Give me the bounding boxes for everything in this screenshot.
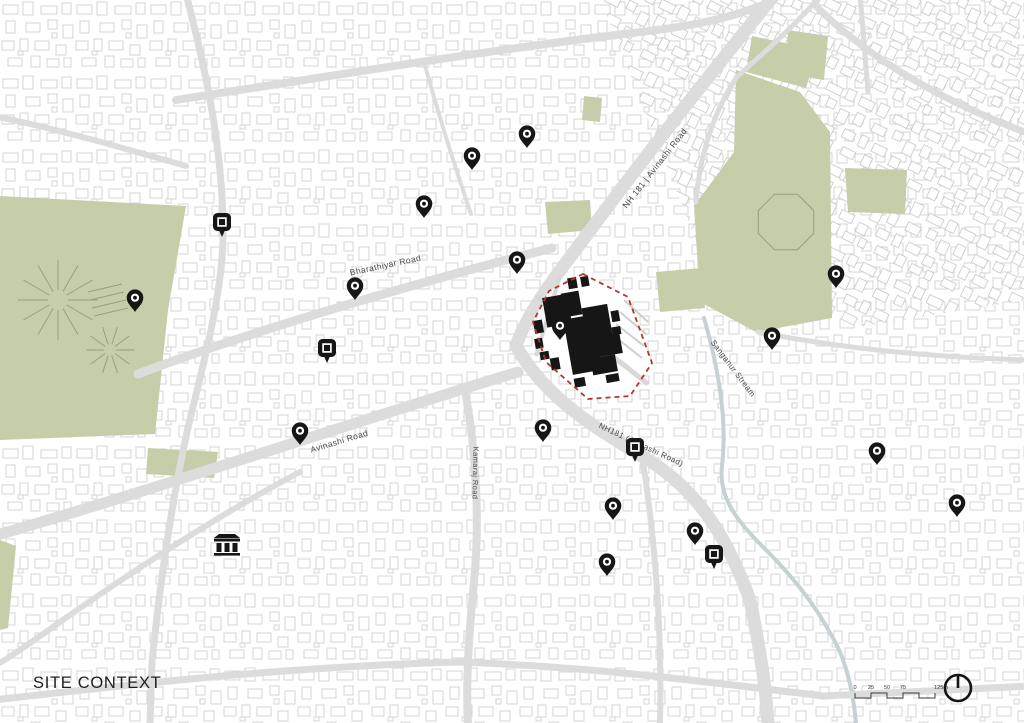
column — [217, 543, 222, 552]
pin-glyph — [558, 324, 562, 328]
scale-label: 25 — [868, 685, 874, 691]
pin-glyph — [541, 426, 545, 430]
page-title: SITE CONTEXT — [33, 674, 162, 693]
green-area — [582, 96, 602, 122]
pin-body — [318, 339, 336, 357]
pin-glyph — [875, 449, 879, 453]
column — [225, 543, 230, 552]
pin-glyph — [298, 429, 302, 433]
entablature — [214, 539, 240, 542]
pin-glyph — [693, 529, 697, 533]
pin-body — [626, 438, 644, 456]
site-building — [595, 333, 623, 357]
site-building — [611, 326, 621, 335]
road-label-kamaraj-road: Kamaraj Road — [471, 447, 481, 500]
pin-glyph — [515, 258, 519, 262]
site-context-map: Bharathiyar RoadNH 181 | Avinashi RoadAv… — [0, 0, 1024, 723]
pin-glyph — [133, 296, 137, 300]
pin-glyph — [955, 501, 959, 505]
pin-glyph — [525, 132, 529, 136]
pin-body — [213, 213, 231, 231]
pin-body — [705, 545, 723, 563]
green-area — [786, 30, 828, 80]
green-area — [656, 268, 705, 312]
pin-glyph — [422, 202, 426, 206]
site-building — [574, 377, 586, 388]
pin-glyph — [353, 284, 357, 288]
green-area — [845, 168, 907, 214]
site-building — [580, 276, 590, 287]
pin-glyph — [605, 560, 609, 564]
pin-glyph — [834, 272, 838, 276]
scale-label: 50 — [884, 685, 890, 691]
pin-glyph — [611, 504, 615, 508]
base — [214, 553, 240, 556]
scale-label: 75 — [900, 685, 906, 691]
pin-glyph — [770, 334, 774, 338]
green-area — [0, 196, 186, 440]
map-canvas: Bharathiyar RoadNH 181 | Avinashi RoadAv… — [0, 0, 1024, 723]
column — [233, 543, 238, 552]
pin-glyph — [470, 154, 474, 158]
scale-label: 0 — [853, 685, 856, 691]
